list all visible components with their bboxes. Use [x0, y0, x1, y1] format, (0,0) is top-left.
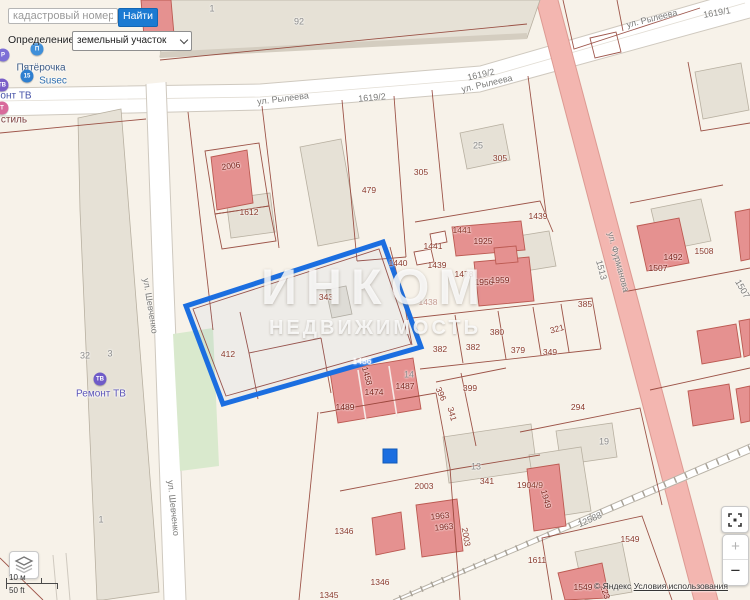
fullscreen-button[interactable]	[721, 506, 749, 533]
object-type-select[interactable]: земельный участок	[72, 31, 192, 51]
filter-label: Определение:	[8, 34, 77, 46]
map-canvas[interactable]	[0, 0, 750, 600]
search-button[interactable]: Найти	[118, 8, 158, 27]
copyright-text: © Яндекс	[594, 581, 631, 591]
chevron-down-icon	[180, 36, 188, 44]
scale-bar: 10 м 50 ft	[5, 572, 75, 598]
object-type-value: земельный участок	[77, 35, 166, 46]
zoom-controls: + −	[722, 534, 749, 586]
cadastral-number-input[interactable]	[8, 8, 118, 24]
fullscreen-icon	[728, 513, 742, 527]
scale-imperial-label: 50 ft	[9, 586, 25, 595]
selected-point-marker	[383, 449, 397, 463]
terms-link[interactable]: Условия использования	[634, 581, 728, 591]
map-attribution: © Яндекс Условия использования	[594, 581, 728, 591]
zoom-in-button[interactable]: +	[723, 535, 748, 560]
cadastral-map-app: ул. Рылеева1619/2ул. Рылеева1619/2ул. Ры…	[0, 0, 750, 600]
scale-metric-label: 10 м	[9, 573, 26, 582]
